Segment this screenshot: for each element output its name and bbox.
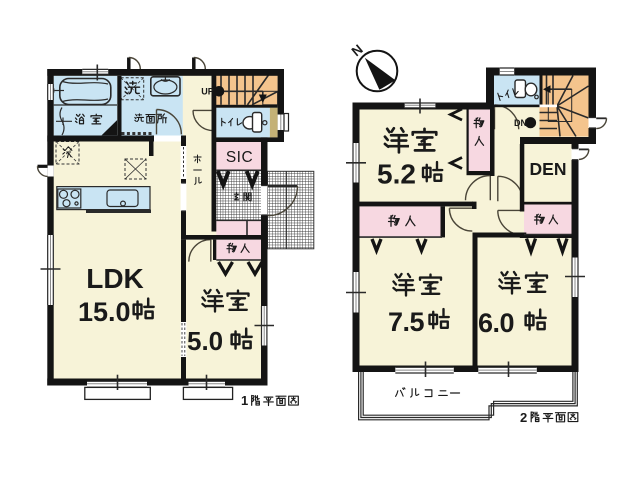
svg-text:DN: DN xyxy=(514,118,527,128)
svg-text:SIC: SIC xyxy=(226,149,253,166)
svg-text:7.5: 7.5 xyxy=(388,307,425,337)
svg-text:6.0: 6.0 xyxy=(478,308,514,338)
svg-text:DEN: DEN xyxy=(530,159,567,179)
svg-text:UP: UP xyxy=(201,87,214,97)
svg-text:15.0: 15.0 xyxy=(78,297,131,327)
svg-text:LDK: LDK xyxy=(86,263,144,294)
svg-text:5.2: 5.2 xyxy=(377,159,416,190)
svg-text:5.0: 5.0 xyxy=(187,326,223,356)
svg-text:2: 2 xyxy=(520,410,527,425)
svg-text:1: 1 xyxy=(241,393,248,408)
